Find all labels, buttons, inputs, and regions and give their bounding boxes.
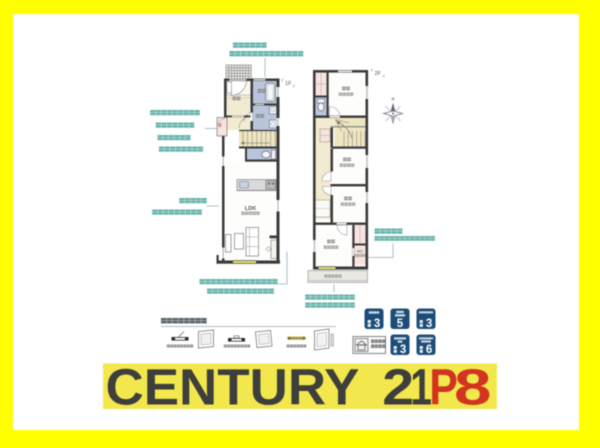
svg-text:3: 3 xyxy=(426,318,432,330)
svg-text:8: 8 xyxy=(454,358,491,415)
svg-text:1F: 1F xyxy=(285,81,292,87)
svg-text:2: 2 xyxy=(382,358,414,415)
svg-text:5: 5 xyxy=(397,318,404,330)
svg-text:3: 3 xyxy=(400,344,406,356)
svg-text:2F: 2F xyxy=(375,71,382,77)
svg-text:CENTURY: CENTURY xyxy=(106,359,360,416)
svg-text:6: 6 xyxy=(426,344,432,356)
svg-text:WIC: WIC xyxy=(357,250,364,254)
svg-text:3: 3 xyxy=(374,318,380,330)
svg-text:LDK: LDK xyxy=(245,206,257,212)
